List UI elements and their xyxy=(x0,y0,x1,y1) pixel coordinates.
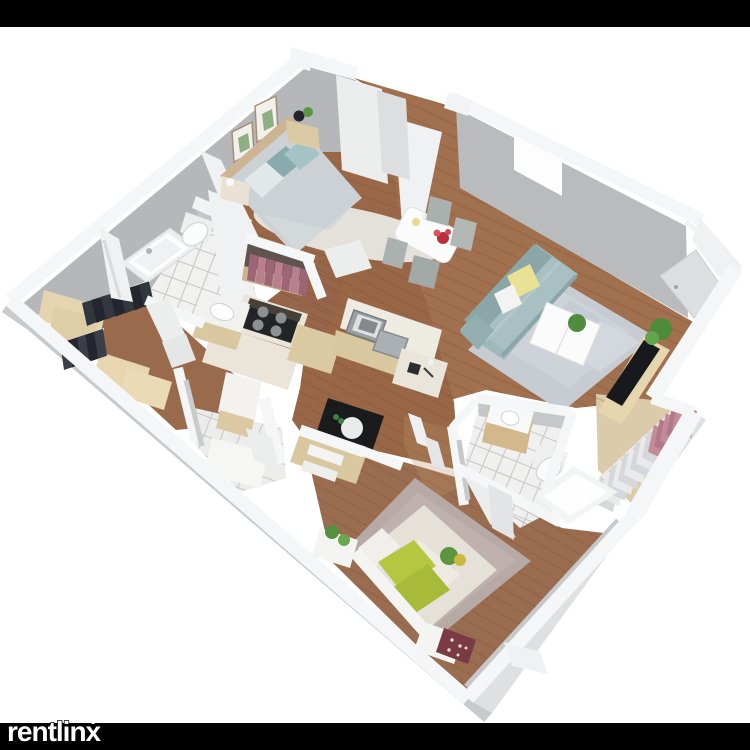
svg-text:rentlinx: rentlinx xyxy=(7,716,102,747)
